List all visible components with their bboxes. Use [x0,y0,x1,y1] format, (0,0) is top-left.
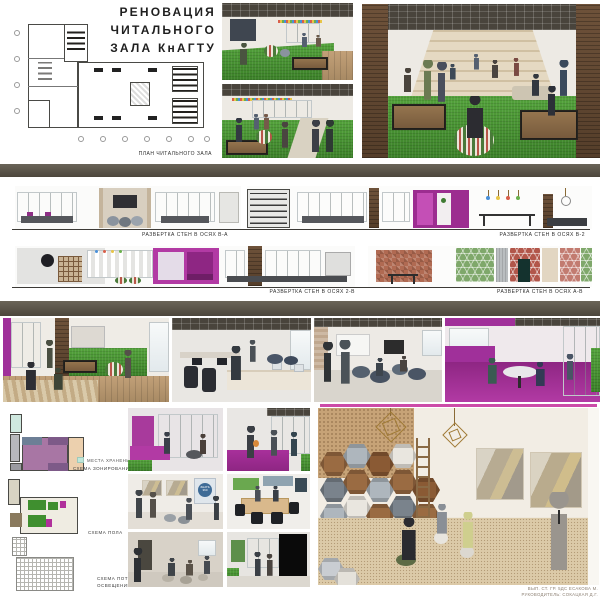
alcove-seat-back [187,252,213,274]
elevation-a-v [368,246,592,287]
render-lounge-bottom [222,84,353,158]
pouf [198,574,208,581]
credits: ВЫП. СТ. ГР. 5ДС ЕСАКОВА М. РУКОВОДИТЕЛЬ… [430,586,598,598]
render-workspace [172,318,311,402]
coffee-table [292,57,328,70]
woven-panel [376,250,432,282]
person-silhouette [134,490,144,518]
scheme-zoning [8,413,86,471]
ceiling-grid [222,84,353,96]
wall-sign-line-2: 360 [198,489,212,492]
sphere-lamp [561,196,571,206]
plan-stacks-top [172,66,198,92]
scheme-ceiling-main [16,557,74,591]
scheme-floor-caption: СХЕМА ПОЛА [88,530,123,535]
shelf-unit [325,252,351,276]
floor-magenta [46,519,52,527]
person-silhouette [374,358,386,376]
render-pouf-corner [128,532,223,587]
magenta-wall-edge [3,318,11,378]
person-silhouette [472,54,480,70]
plant [441,198,446,203]
floor [227,576,310,587]
zone-purple [48,437,68,445]
person-silhouette [422,60,434,100]
person-silhouette [265,554,274,576]
person-silhouette [398,356,410,372]
striped-pouf [105,362,123,377]
person-silhouette [184,498,194,520]
divider-band [0,164,600,177]
ceiling-grid [362,4,600,30]
zone-mint [10,414,22,433]
floor-plan [8,24,212,150]
plan-axis-bubble [14,30,20,36]
desk-row [21,216,73,223]
black-block [279,534,307,576]
person-silhouette [252,114,260,130]
person-silhouette [460,512,476,548]
bench [63,360,97,373]
credenza [547,218,587,226]
plan-axis-bubble [100,136,106,142]
person-silhouette [132,548,144,582]
lamp-cord [565,188,566,196]
desk-row [161,216,209,223]
person-silhouette [184,560,196,576]
storage-legend-label: МЕСТА ХРАНЕНИЯ [87,458,134,463]
wood-column [576,4,600,158]
hex-wall-green [581,248,592,282]
person-silhouette [558,60,570,96]
render-purple-lounge [128,408,223,471]
striped-pouf [256,130,272,144]
person-silhouette [45,340,54,368]
floor-green [48,502,58,510]
accent-chair [45,212,51,216]
glass-wall [382,192,410,222]
plan-atrium [130,82,150,106]
table-base [518,376,521,388]
person-silhouette [23,362,39,390]
person-silhouette [123,350,133,378]
render-beanbag-room [314,318,442,402]
scheme-ceiling-wing [12,537,27,556]
bean-bag [131,216,143,226]
ceiling-grid [222,3,353,17]
person-silhouette [280,122,290,148]
office-chair [235,504,245,516]
plan-wall [28,86,78,87]
magenta-panel [132,416,154,450]
blue-panel [263,476,293,486]
cafe-wall [473,188,553,228]
tv-screen [113,195,137,208]
green-wall [231,540,245,562]
magenta-ceiling [445,318,515,326]
zone-purple [48,463,68,471]
person-silhouette [148,492,158,518]
wall-panel [219,192,239,223]
plan-caption: ПЛАН ЧИТАЛЬНОГО ЗАЛА [110,151,212,157]
plan-axis-bubble [166,136,172,142]
bean-bag [107,216,119,226]
person-silhouette [322,342,334,382]
plan-axis-bubble [188,136,194,142]
office-chair [271,512,283,524]
zone-slate [22,437,42,445]
curtain [496,248,508,282]
plan-axis-bubble [122,136,128,142]
desk-row [227,276,347,282]
bright-wall-edge [588,408,599,585]
plan-axis-bubble [14,56,20,62]
plan-axis-bubble [78,136,84,142]
plan-desk [112,68,121,72]
person-silhouette [398,518,420,560]
person-silhouette [314,35,322,47]
person-silhouette [300,33,308,47]
plan-stacks-bottom [172,98,198,124]
ceiling-grid [314,318,442,327]
pouf [180,576,192,584]
render-gallery-room: ЗНАТЬ 360 [128,474,223,529]
magenta-divider [320,404,597,407]
person-silhouette [253,486,262,502]
floor-brown [10,513,22,527]
blackboard [384,340,404,354]
office-chair [289,502,299,514]
wall-art [166,480,188,496]
render-green-wall-room [227,532,310,587]
plan-axis-bubble [14,82,20,88]
window [422,330,442,356]
bean-bag [408,368,426,380]
person-silhouette [462,96,488,138]
plan-axis-bubble [144,136,150,142]
orange-bag [253,440,259,447]
scheme-floor [8,479,78,534]
magenta-floor [227,450,289,471]
render-amphitheater [362,4,600,158]
person-silhouette [546,492,572,570]
presentation-board: РЕНОВАЦИЯ ЧИТАЛЬНОГО ЗАЛА КнАГТУ ПЛАН ЧИ… [0,0,600,600]
person-silhouette [565,354,575,380]
elevation-v-2 [247,186,592,229]
person-silhouette [198,434,208,454]
abstract-painting [476,448,524,500]
person-silhouette [485,358,499,384]
elevation-2-v [15,246,355,287]
person-silhouette [310,120,322,152]
render-reading-lawn [3,318,169,402]
window [265,250,321,278]
table [479,214,535,216]
person-silhouette [338,340,352,384]
person-silhouette [228,346,244,380]
floor-green [28,515,46,527]
window [225,250,245,278]
person-silhouette [512,58,520,76]
curtained-window [87,250,153,278]
alcove-glass [158,252,184,280]
elevation-caption-4: РАЗВЕРТКА СТЕН В ОСЯХ А-В [368,289,583,295]
floor-wing [8,479,20,505]
pendant-lamp [506,196,510,200]
monitor [192,358,202,365]
elevation-v-a [15,186,241,229]
person-silhouette [238,43,250,65]
storage-legend-chip-icon [77,457,84,463]
pouf [164,514,176,522]
hex-wall-pink [560,248,580,282]
person-silhouette [162,432,172,454]
render-magenta-floor-hall [227,408,310,471]
striped-pouf [129,277,141,284]
glass-partition [247,538,279,568]
plan-desk [148,116,157,120]
plan-desk [148,68,157,72]
person-silhouette [269,430,279,456]
bean-bag [267,354,283,364]
table-leg [413,276,415,284]
window [149,322,169,372]
render-meeting-room [227,474,310,529]
striped-pouf [264,45,278,57]
office-chair [251,512,263,524]
plan-desk [112,116,121,120]
shelf-stripes [250,193,287,224]
pouf [280,49,290,57]
back-shelves [71,326,105,348]
pendant-lamp [111,250,114,253]
ceiling-grid [515,318,600,326]
striped-pouf [115,277,127,284]
cube-rack [58,256,82,282]
bean-bag [119,217,131,227]
monitor [217,358,227,365]
wardrobe-door [417,193,433,225]
bean-bag [352,366,370,378]
ceiling-grid [267,408,310,416]
person-silhouette [530,74,542,96]
render-hex-library [318,408,599,585]
bean-bag [284,356,298,365]
beige-panel [542,248,558,282]
person-silhouette [490,60,500,78]
plan-room [28,100,50,128]
divider-band [0,301,600,316]
office-chair [202,368,216,392]
pillar [147,188,151,228]
pendant-lamp [95,250,98,253]
zone-gray [10,463,22,471]
table-leg [391,276,393,284]
sphere-decor [41,254,54,267]
floor-green [28,500,46,510]
desk-row [302,216,364,223]
person-silhouette [262,114,270,130]
person-silhouette [434,504,450,534]
person-silhouette [253,552,262,576]
alcove-seat [187,274,213,280]
person-silhouette [533,362,547,386]
pendant-lamp [103,250,106,253]
person-silhouette [546,86,558,116]
window [198,540,216,556]
plan-stair [38,62,52,80]
knowledge-logo: ЗНАТЬ 360 [198,483,212,497]
window [252,100,312,118]
necktie [558,510,560,524]
ground-line [12,287,590,288]
low-table [392,104,446,130]
credits-line-2: РУКОВОДИТЕЛЬ: СОКАЦКАЯ Д.Г. [430,592,598,598]
monitor [294,364,304,372]
person-silhouette [248,340,257,362]
pendant-lamp [496,196,500,200]
table-leg [529,216,531,226]
scheme-zoning-caption: СХЕМА ЗОНИРОВАНИЯ [73,466,133,471]
render-magenta-meeting [445,318,600,402]
person-silhouette [271,486,280,502]
plan-axis-bubble [204,136,210,142]
person-silhouette [234,118,244,142]
pendant-lamp [486,196,490,200]
zone-gray-wing [10,434,20,462]
render-lounge-top [222,3,353,80]
elevation-caption-3: РАЗВЕРТКА СТЕН В ОСЯХ 2-В [15,289,355,295]
grass-strip [301,454,310,471]
person-silhouette [202,556,212,574]
person-silhouette [402,68,414,92]
wood-column [369,188,379,228]
accent-chair [27,212,33,216]
ladder [416,438,430,518]
ceiling-grid [172,318,311,330]
person-silhouette [448,64,457,80]
plan-book-stacks [67,28,85,50]
grass-strip [591,348,600,392]
hex-wall-green [456,248,494,282]
diamond-pendant-light [442,422,467,447]
person-silhouette [212,496,220,520]
plan-desk [94,68,103,72]
floor-magenta [60,501,66,508]
person-silhouette [166,558,178,576]
elevation-caption-2: РАЗВЕРТКА СТЕН В ОСЯХ В-2 [247,232,585,238]
grass-corner [128,460,152,471]
pendant-lamp [516,196,520,200]
person-silhouette [289,432,299,456]
elevation-caption-1: РАЗВЕРТКА СТЕН В ОСЯХ В-А [15,232,228,238]
office-chair [184,366,198,388]
wood-column [362,4,388,158]
dark-window [295,478,307,492]
media-wall [230,19,256,41]
person-silhouette [324,120,336,152]
ground-line [12,229,590,230]
pendant-lamp [119,250,122,253]
scheme-ceiling-caption-2: ОСВЕЩЕНИЕ [97,583,131,588]
plan-axis-bubble [14,108,20,114]
door [518,259,530,282]
table-leg [483,216,485,226]
person-silhouette [436,62,448,102]
plan-desk [94,116,103,120]
person-silhouette [51,368,65,390]
